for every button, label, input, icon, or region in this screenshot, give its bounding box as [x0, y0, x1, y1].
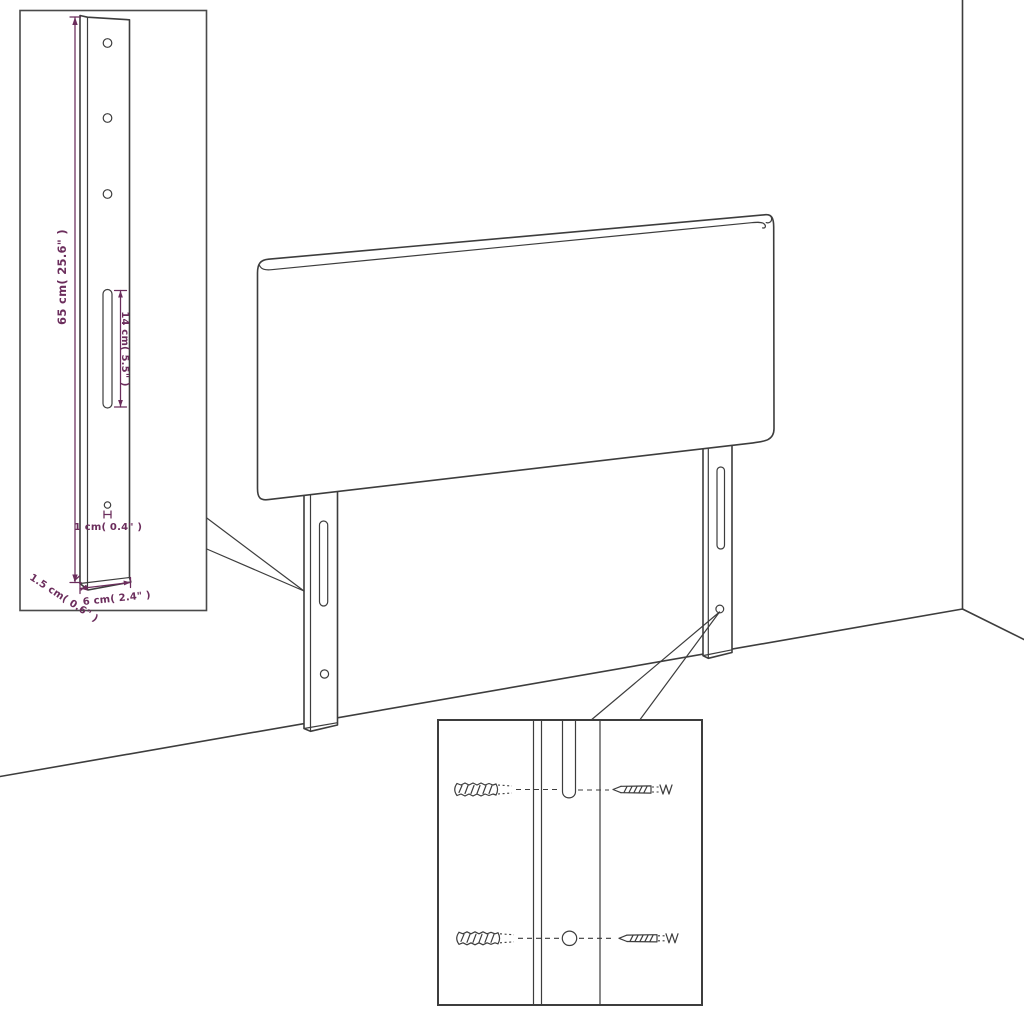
leader-inset1-upper — [207, 518, 304, 591]
inset2-hole — [562, 931, 576, 945]
leader-inset1-lower — [207, 549, 304, 591]
leader-inset2-right — [639, 612, 720, 721]
leg-left-slot — [320, 521, 328, 606]
floor-edge-right — [963, 609, 1024, 640]
diagram-canvas: 65 cm( 25.6" ) 14 cm( 5.5" ) 1 cm( 0.4" … — [0, 0, 1024, 1024]
callout-lines — [207, 518, 720, 721]
headboard-dimension-diagram: 65 cm( 25.6" ) 14 cm( 5.5" ) 1 cm( 0.4" … — [0, 0, 1024, 1024]
detail-small-hole — [104, 502, 110, 508]
dim-slot-length-label: 14 cm( 5.5" ) — [119, 311, 130, 386]
headboard-leg-right — [703, 443, 732, 658]
dim-hole-diameter-label: 1 cm( 0.4" ) — [74, 522, 142, 533]
detail-slot — [103, 290, 112, 409]
leg-left-hole — [320, 670, 328, 678]
headboard-panel — [258, 215, 775, 500]
detail-hole-1 — [103, 39, 112, 48]
panel-outline — [258, 215, 775, 500]
detail-hole-3 — [103, 190, 112, 199]
inset2-slot — [563, 721, 576, 798]
detail-hole-2 — [103, 114, 112, 123]
inset-leg-dimensions: 65 cm( 25.6" ) 14 cm( 5.5" ) 1 cm( 0.4" … — [20, 11, 207, 625]
leg-right-slot — [717, 467, 725, 549]
dim-total-height-label: 65 cm( 25.6" ) — [55, 229, 69, 325]
inset-mounting-detail — [438, 720, 702, 1005]
leader-inset2-left — [590, 612, 720, 721]
